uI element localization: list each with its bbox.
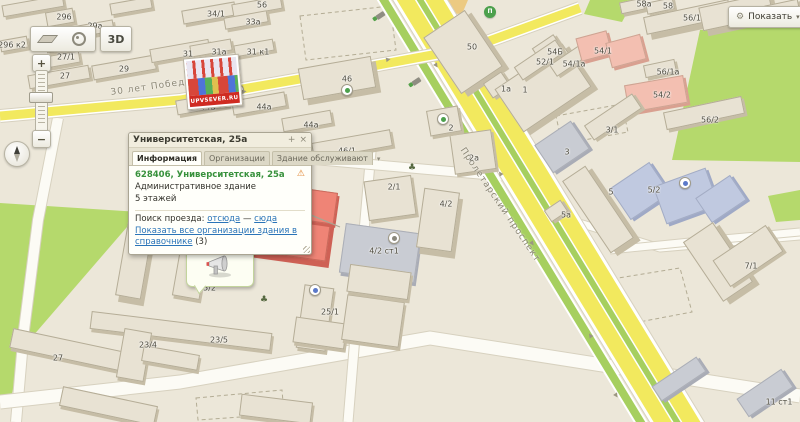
building-label: 27	[53, 354, 63, 363]
building-label: 5	[608, 188, 613, 197]
chevron-down-icon: ▾	[796, 13, 800, 21]
building-label: 52/1	[536, 58, 554, 67]
popup-title: Университетская, 25а	[133, 135, 284, 145]
building-info-popup: Университетская, 25а + × Информация Орга…	[128, 132, 312, 255]
map-application: Пролетарский проспект30 лет ПобедыП♣♣▲▲▲…	[0, 0, 800, 422]
zoom-slider-handle[interactable]	[29, 92, 53, 103]
building-label: 54/2	[653, 91, 671, 100]
labels-layer: 296 к229629а27/227/127293134/15633а31а31…	[0, 0, 800, 422]
building-label: 44а	[303, 121, 318, 130]
popup-address: 628406, Университетская, 25а	[135, 170, 285, 182]
building-label: 56/1а	[657, 68, 680, 77]
popup-pin-icon[interactable]: +	[288, 136, 296, 145]
building-label: 44а	[256, 103, 271, 112]
route-to-link[interactable]: сюда	[254, 214, 277, 224]
compass[interactable]	[4, 141, 30, 167]
building-label: 54Б	[547, 48, 563, 57]
building-label: 1	[522, 86, 527, 95]
building-label: 3	[564, 148, 569, 157]
building-label: 7/1	[745, 262, 758, 271]
3d-button[interactable]: 3D	[100, 26, 132, 52]
building-label: 54/1а	[563, 60, 586, 69]
building-label: 2а	[469, 154, 479, 163]
popup-building-kind: Административное здание	[135, 182, 305, 194]
building-label: 27/1	[57, 53, 75, 62]
building-label: 33а	[245, 18, 260, 27]
popup-close-icon[interactable]: ×	[299, 136, 307, 145]
building-label: 1а	[501, 85, 511, 94]
building-label: 50	[467, 43, 477, 52]
building-label: 23/5	[210, 336, 228, 345]
building-label: 296 к2	[0, 41, 26, 50]
building-label: 58	[663, 2, 673, 11]
building-label: 5а	[561, 211, 571, 220]
route-label: Поиск проезда:	[135, 214, 204, 224]
building-label: 23/4	[139, 341, 157, 350]
show-button-label: Показать	[748, 12, 792, 22]
building-label: 34/1	[207, 10, 225, 19]
route-dash: —	[243, 214, 252, 224]
show-organizations-link[interactable]: Показать все организации здания в справо…	[135, 226, 297, 248]
popup-titlebar: Университетская, 25а + ×	[129, 133, 311, 148]
rotate-view-icon	[72, 32, 86, 46]
building-label: 46	[342, 75, 352, 84]
route-from-link[interactable]: отсюда	[207, 214, 240, 224]
compass-south-needle-icon	[14, 154, 20, 162]
building-label: 2	[448, 124, 453, 133]
building-label: 29	[119, 65, 129, 74]
rotate-view-button[interactable]	[66, 29, 92, 49]
building-label: 58а	[636, 0, 651, 9]
building-label: 4/2 ст1	[369, 247, 399, 256]
gear-icon: ⚙	[736, 12, 744, 22]
popup-divider	[135, 210, 305, 211]
building-label: 54/1	[594, 47, 612, 56]
building-label: 3/1	[606, 126, 619, 135]
popup-body: 628406, Университетская, 25а ⚠ Администр…	[129, 165, 311, 254]
orgs-count: (3)	[195, 237, 207, 247]
building-label: 296	[56, 13, 71, 22]
building-label: 56	[257, 1, 267, 10]
megaphone-icon	[205, 254, 235, 278]
popup-route-row: Поиск проезда: отсюда — сюда	[135, 214, 305, 226]
flat-view-icon	[36, 35, 57, 43]
building-label: 25/1	[321, 308, 339, 317]
popup-resize-handle[interactable]	[303, 246, 310, 253]
chevron-down-icon[interactable]: ▾	[375, 155, 383, 165]
building-label: 5/2	[648, 186, 661, 195]
compass-north-needle-icon	[14, 146, 20, 154]
tab-information[interactable]: Информация	[132, 151, 202, 165]
popup-tabs: Информация Организации Здание обслуживаю…	[129, 148, 311, 165]
map-mode-toolbar	[30, 26, 96, 52]
flat-view-button[interactable]	[34, 29, 60, 49]
building-label: 11 ст1	[766, 398, 793, 407]
building-label: 31 к1	[247, 48, 270, 57]
billboard-ad[interactable]: UPVSEVER.RU	[183, 54, 243, 111]
tab-organizations[interactable]: Организации	[204, 151, 270, 165]
building-label: 56/2	[701, 116, 719, 125]
building-label: 56/1	[683, 14, 701, 23]
building-label: 2/1	[388, 183, 401, 192]
warning-icon[interactable]: ⚠	[297, 170, 305, 179]
zoom-out-button[interactable]: −	[32, 130, 51, 148]
building-label: 4/2	[440, 200, 453, 209]
building-label: 27	[60, 72, 70, 81]
popup-orgs-row: Показать все организации здания в справо…	[135, 226, 305, 250]
popup-floors: 5 этажей	[135, 194, 305, 206]
tab-service[interactable]: Здание обслуживают	[272, 151, 373, 165]
show-layers-button[interactable]: ⚙ Показать ▾	[728, 6, 800, 28]
